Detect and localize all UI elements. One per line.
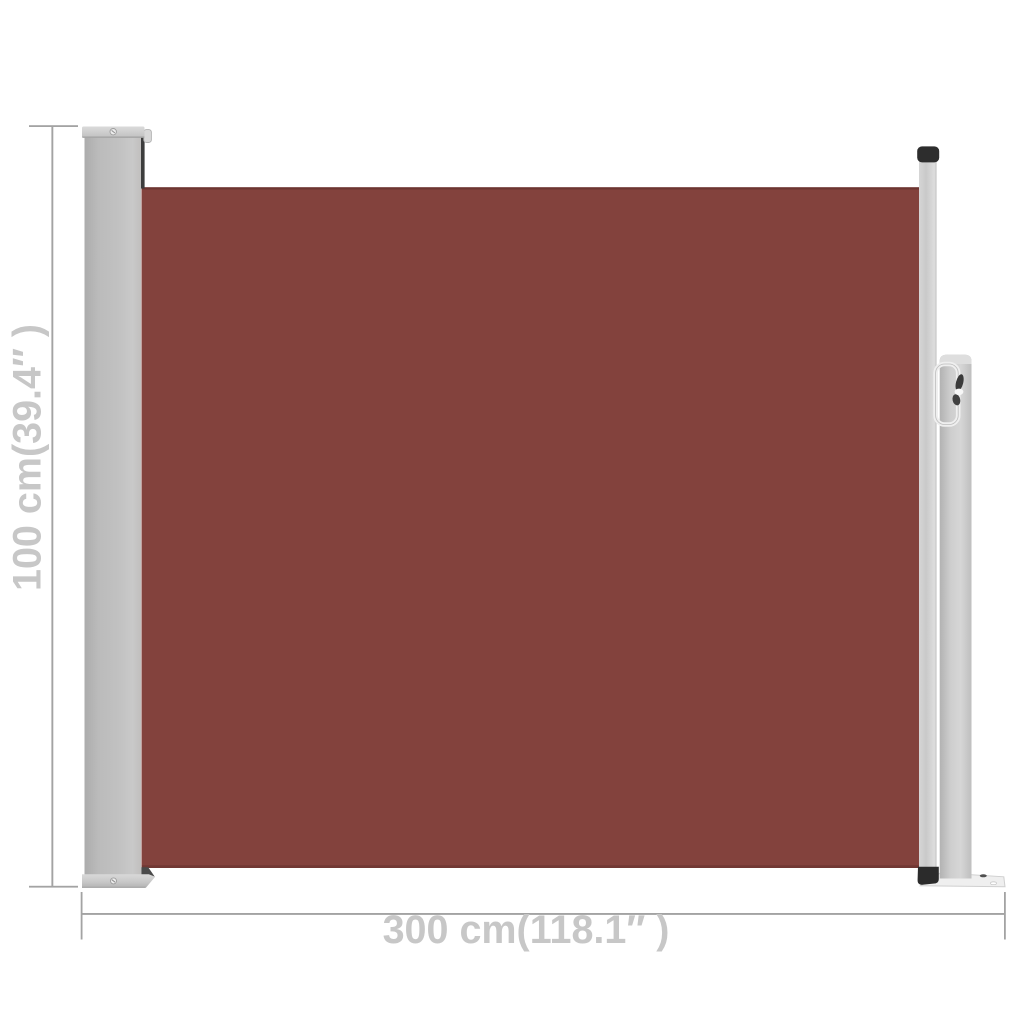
svg-text:300 cm(118.1″ ): 300 cm(118.1″ ) bbox=[383, 908, 670, 952]
svg-text:100 cm(39.4″ ): 100 cm(39.4″ ) bbox=[6, 324, 50, 591]
